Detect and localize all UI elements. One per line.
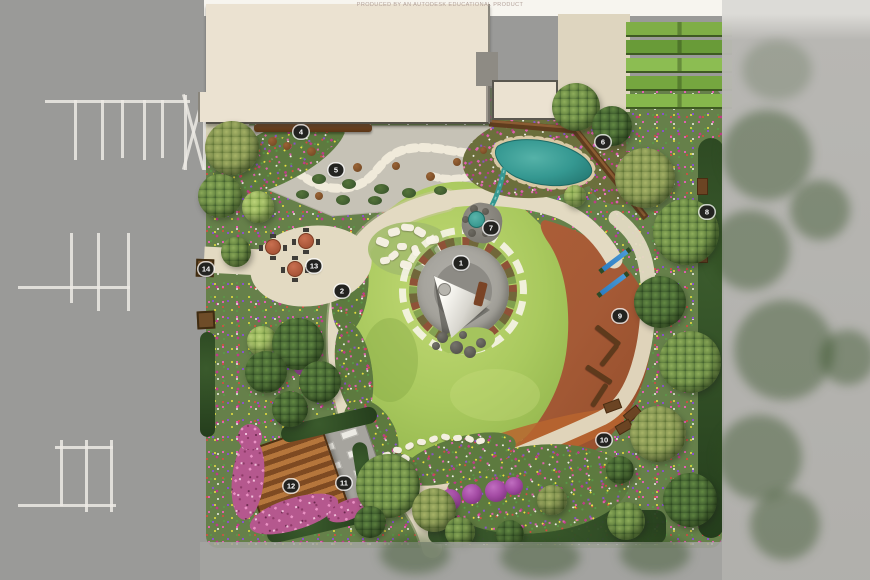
faded-tree [734,300,834,400]
tree [299,361,341,403]
tree [537,485,567,515]
faded-tree [380,534,450,574]
tree [630,406,686,462]
site-plan-image: PRODUCED BY AN AUTODESK EDUCATIONAL PROD… [0,0,870,580]
tree [592,106,632,146]
tree [615,148,675,208]
tree [242,191,274,223]
tree [653,199,719,265]
tree [272,391,308,427]
faded-tree [790,180,850,240]
tree [607,502,645,540]
faded-tree [710,210,790,290]
tree [205,121,259,175]
faded-tree [722,110,812,200]
tree [634,276,686,328]
tree [564,185,586,207]
faded-tree [717,415,802,500]
faded-tree [620,534,690,574]
tree [221,237,251,267]
tree [354,506,386,538]
tree [606,456,634,484]
faded-tree [820,330,870,385]
tree [659,331,721,393]
autodesk-watermark: PRODUCED BY AN AUTODESK EDUCATIONAL PROD… [300,2,580,8]
faded-tree [742,40,812,100]
faded-tree [500,537,580,577]
tree [198,174,242,218]
faded-tree [750,490,820,560]
tree [663,473,717,527]
overlay-right [722,0,870,580]
tree [245,351,287,393]
overlay-bottom [200,542,722,580]
